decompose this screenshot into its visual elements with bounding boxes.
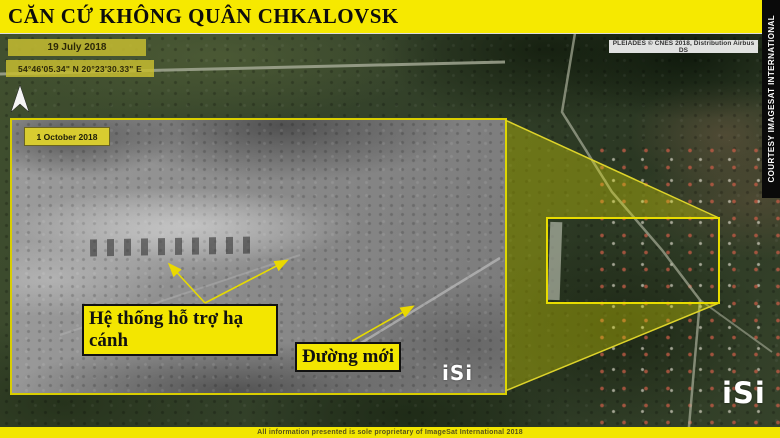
main-date-badge: 19 July 2018: [8, 39, 146, 56]
courtesy-credit-strip: COURTESY IMAGESAT INTERNATIONAL: [762, 0, 780, 198]
inset-date-badge: 1 October 2018: [24, 127, 110, 146]
courtesy-credit-text: COURTESY IMAGESAT INTERNATIONAL: [767, 15, 776, 183]
satellite-news-graphic: 1 October 2018 19 July 2018 54°46'05.34"…: [0, 0, 780, 438]
page-title: CĂN CỨ KHÔNG QUÂN CHKALOVSK: [8, 4, 399, 29]
footer-disclaimer-strip: All information presented is sole propri…: [0, 427, 780, 438]
inset-aircraft-revetments: [90, 237, 255, 257]
imagery-provider-credit: PLEIADES © CNES 2018, Distribution Airbu…: [609, 40, 758, 53]
title-bar: CĂN CỨ KHÔNG QUÂN CHKALOVSK: [0, 0, 780, 34]
footer-disclaimer-text: All information presented is sole propri…: [257, 429, 523, 436]
isi-logo-main: iSi: [722, 376, 766, 410]
coordinates-badge: 54°46'05.34" N 20°23'30.33" E: [6, 60, 154, 77]
isi-logo-inset: iSi: [442, 361, 473, 385]
callout-new-road: Đường mới: [295, 342, 401, 372]
callout-landing-support-system: Hệ thống hỗ trợ hạ cánh: [82, 304, 278, 356]
